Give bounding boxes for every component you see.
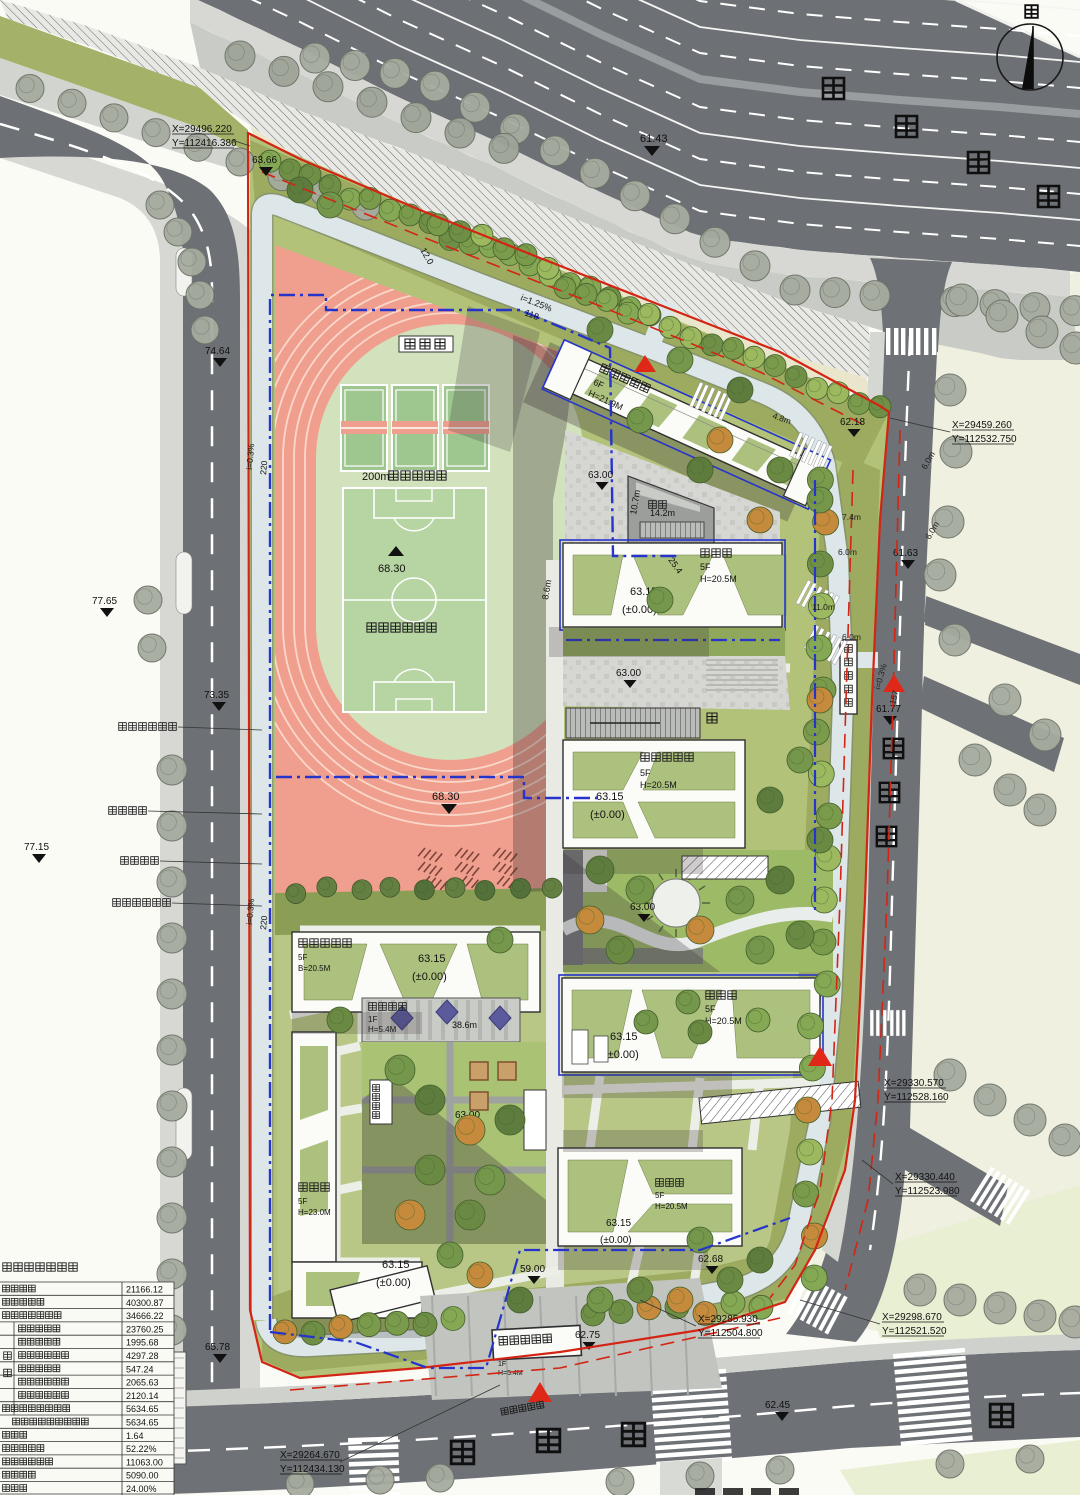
svg-text:H=20.5M: H=20.5M <box>655 1202 688 1211</box>
svg-text:6.0m: 6.0m <box>842 632 861 642</box>
svg-text:X=29330.570: X=29330.570 <box>884 1078 944 1089</box>
svg-text:6.0m: 6.0m <box>838 547 857 557</box>
svg-text:63.15: 63.15 <box>418 953 446 965</box>
svg-text:63.15: 63.15 <box>382 1259 410 1271</box>
svg-text:63.15: 63.15 <box>610 1031 638 1043</box>
svg-text:59.00: 59.00 <box>520 1264 545 1275</box>
svg-text:5F: 5F <box>705 1004 716 1014</box>
svg-text:H=20.5M: H=20.5M <box>700 574 737 584</box>
svg-text:11.0m: 11.0m <box>812 602 835 612</box>
svg-text:62.18: 62.18 <box>840 417 865 428</box>
svg-text:5F: 5F <box>700 562 711 572</box>
svg-text:11063.00: 11063.00 <box>126 1457 163 1467</box>
svg-text:65.78: 65.78 <box>205 1342 230 1353</box>
svg-text:Y=112504.800: Y=112504.800 <box>698 1328 763 1339</box>
svg-text:77.15: 77.15 <box>24 842 49 853</box>
svg-text:5090.00: 5090.00 <box>126 1471 159 1481</box>
svg-text:4297.28: 4297.28 <box>126 1351 159 1361</box>
svg-text:H=20.5M: H=20.5M <box>640 780 677 790</box>
svg-text:5F: 5F <box>298 953 307 962</box>
svg-text:63.66: 63.66 <box>252 155 277 166</box>
svg-text:Y=112528.160: Y=112528.160 <box>884 1092 949 1103</box>
svg-text:Y=112434.130: Y=112434.130 <box>280 1464 345 1475</box>
svg-text:547.24: 547.24 <box>126 1364 154 1374</box>
svg-text:200m: 200m <box>362 471 390 483</box>
svg-text:63.00: 63.00 <box>616 668 641 679</box>
svg-text:68.30: 68.30 <box>432 791 460 803</box>
svg-text:1995.68: 1995.68 <box>126 1338 159 1348</box>
svg-text:(±0.00): (±0.00) <box>590 809 625 821</box>
svg-text:220: 220 <box>258 915 269 930</box>
svg-text:(±0.00): (±0.00) <box>412 971 447 983</box>
svg-text:63.00: 63.00 <box>588 470 613 481</box>
svg-text:H=23.0M: H=23.0M <box>298 1208 331 1217</box>
svg-text:2120.14: 2120.14 <box>126 1391 159 1401</box>
svg-text:61.43: 61.43 <box>640 133 668 145</box>
svg-text:63.15: 63.15 <box>596 791 624 803</box>
svg-text:(±0.00): (±0.00) <box>604 1049 639 1061</box>
svg-text:Y=112523.980: Y=112523.980 <box>895 1186 960 1197</box>
svg-text:68.30: 68.30 <box>378 563 406 575</box>
svg-text:5F: 5F <box>655 1191 664 1200</box>
svg-text:1.64: 1.64 <box>126 1431 144 1441</box>
svg-text:5634.65: 5634.65 <box>126 1418 159 1428</box>
svg-text:1F: 1F <box>498 1361 506 1368</box>
svg-text:220: 220 <box>258 460 269 475</box>
svg-text:(±0.00): (±0.00) <box>376 1277 411 1289</box>
svg-text:X=29298.670: X=29298.670 <box>882 1312 942 1323</box>
svg-text:5F: 5F <box>298 1197 307 1206</box>
svg-text:B=20.5M: B=20.5M <box>298 964 331 973</box>
svg-text:62.45: 62.45 <box>765 1400 790 1411</box>
svg-text:X=29459.260: X=29459.260 <box>952 420 1012 431</box>
svg-text:74.64: 74.64 <box>205 346 230 357</box>
svg-text:7.4m: 7.4m <box>842 512 861 522</box>
svg-text:34666.22: 34666.22 <box>126 1311 164 1321</box>
svg-text:38.6m: 38.6m <box>452 1020 477 1030</box>
svg-text:Y=112532.750: Y=112532.750 <box>952 434 1017 445</box>
svg-text:5634.65: 5634.65 <box>126 1404 159 1414</box>
svg-text:Y=112521.520: Y=112521.520 <box>882 1326 947 1337</box>
svg-text:Y=112416.386: Y=112416.386 <box>172 138 237 149</box>
svg-text:21166.12: 21166.12 <box>126 1285 163 1295</box>
svg-text:73.35: 73.35 <box>204 690 229 701</box>
svg-text:23760.25: 23760.25 <box>126 1324 164 1334</box>
svg-text:X=29330.440: X=29330.440 <box>895 1172 955 1183</box>
svg-text:61.77: 61.77 <box>876 704 901 715</box>
svg-text:X=29264.670: X=29264.670 <box>280 1450 340 1461</box>
svg-text:62.75: 62.75 <box>575 1330 600 1341</box>
svg-text:77.65: 77.65 <box>92 596 117 607</box>
svg-text:2065.63: 2065.63 <box>126 1378 159 1388</box>
svg-text:40300.87: 40300.87 <box>126 1298 164 1308</box>
svg-text:X=29285.930: X=29285.930 <box>698 1314 758 1325</box>
svg-text:(±0.00): (±0.00) <box>600 1235 632 1246</box>
svg-text:14.2m: 14.2m <box>650 508 675 518</box>
svg-text:X=29496.220: X=29496.220 <box>172 124 232 135</box>
svg-text:5F: 5F <box>640 768 651 778</box>
svg-text:52.22%: 52.22% <box>126 1444 157 1454</box>
svg-text:H=20.5M: H=20.5M <box>705 1016 742 1026</box>
svg-text:24.00%: 24.00% <box>126 1484 157 1494</box>
svg-text:63.15: 63.15 <box>606 1218 631 1229</box>
